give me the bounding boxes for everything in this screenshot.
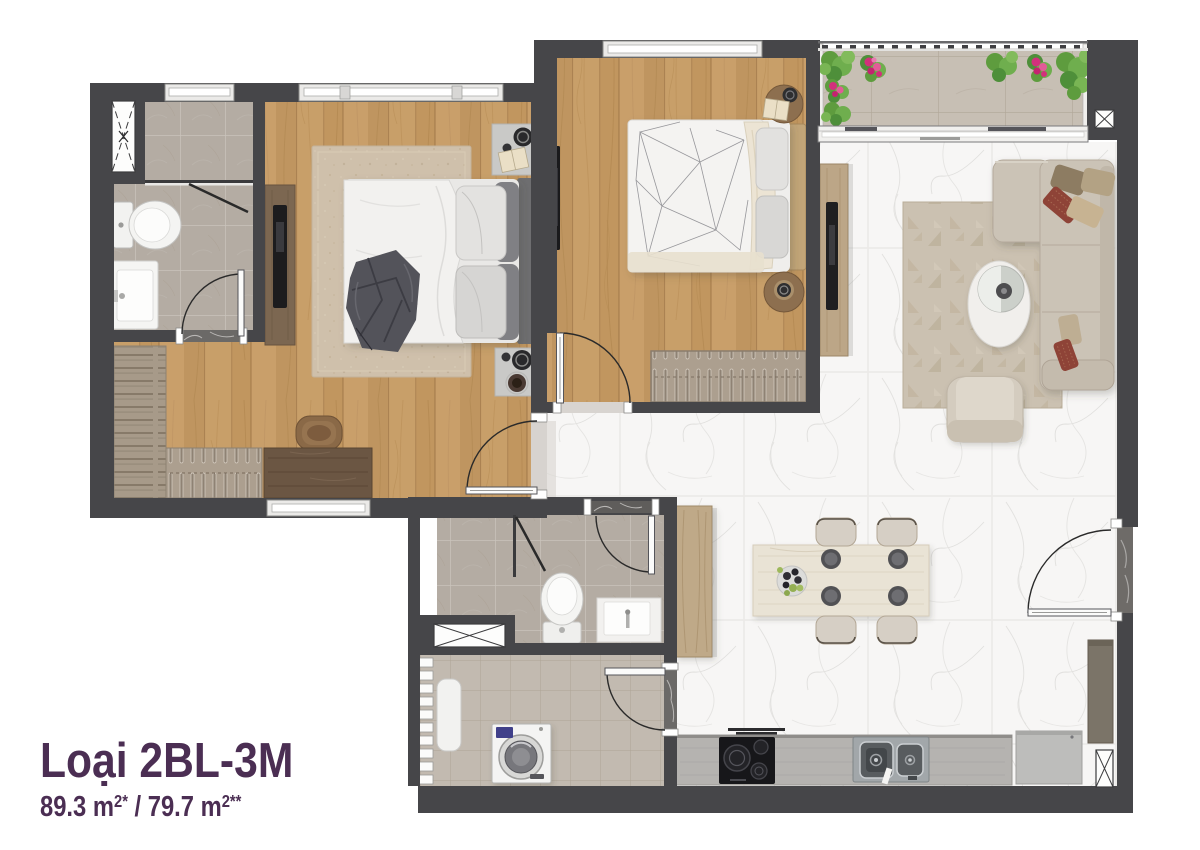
- svg-text:Loại 2BL-3M: Loại 2BL-3M: [40, 732, 293, 787]
- svg-text:89.3 m2* / 79.7 m2**: 89.3 m2* / 79.7 m2**: [40, 790, 242, 823]
